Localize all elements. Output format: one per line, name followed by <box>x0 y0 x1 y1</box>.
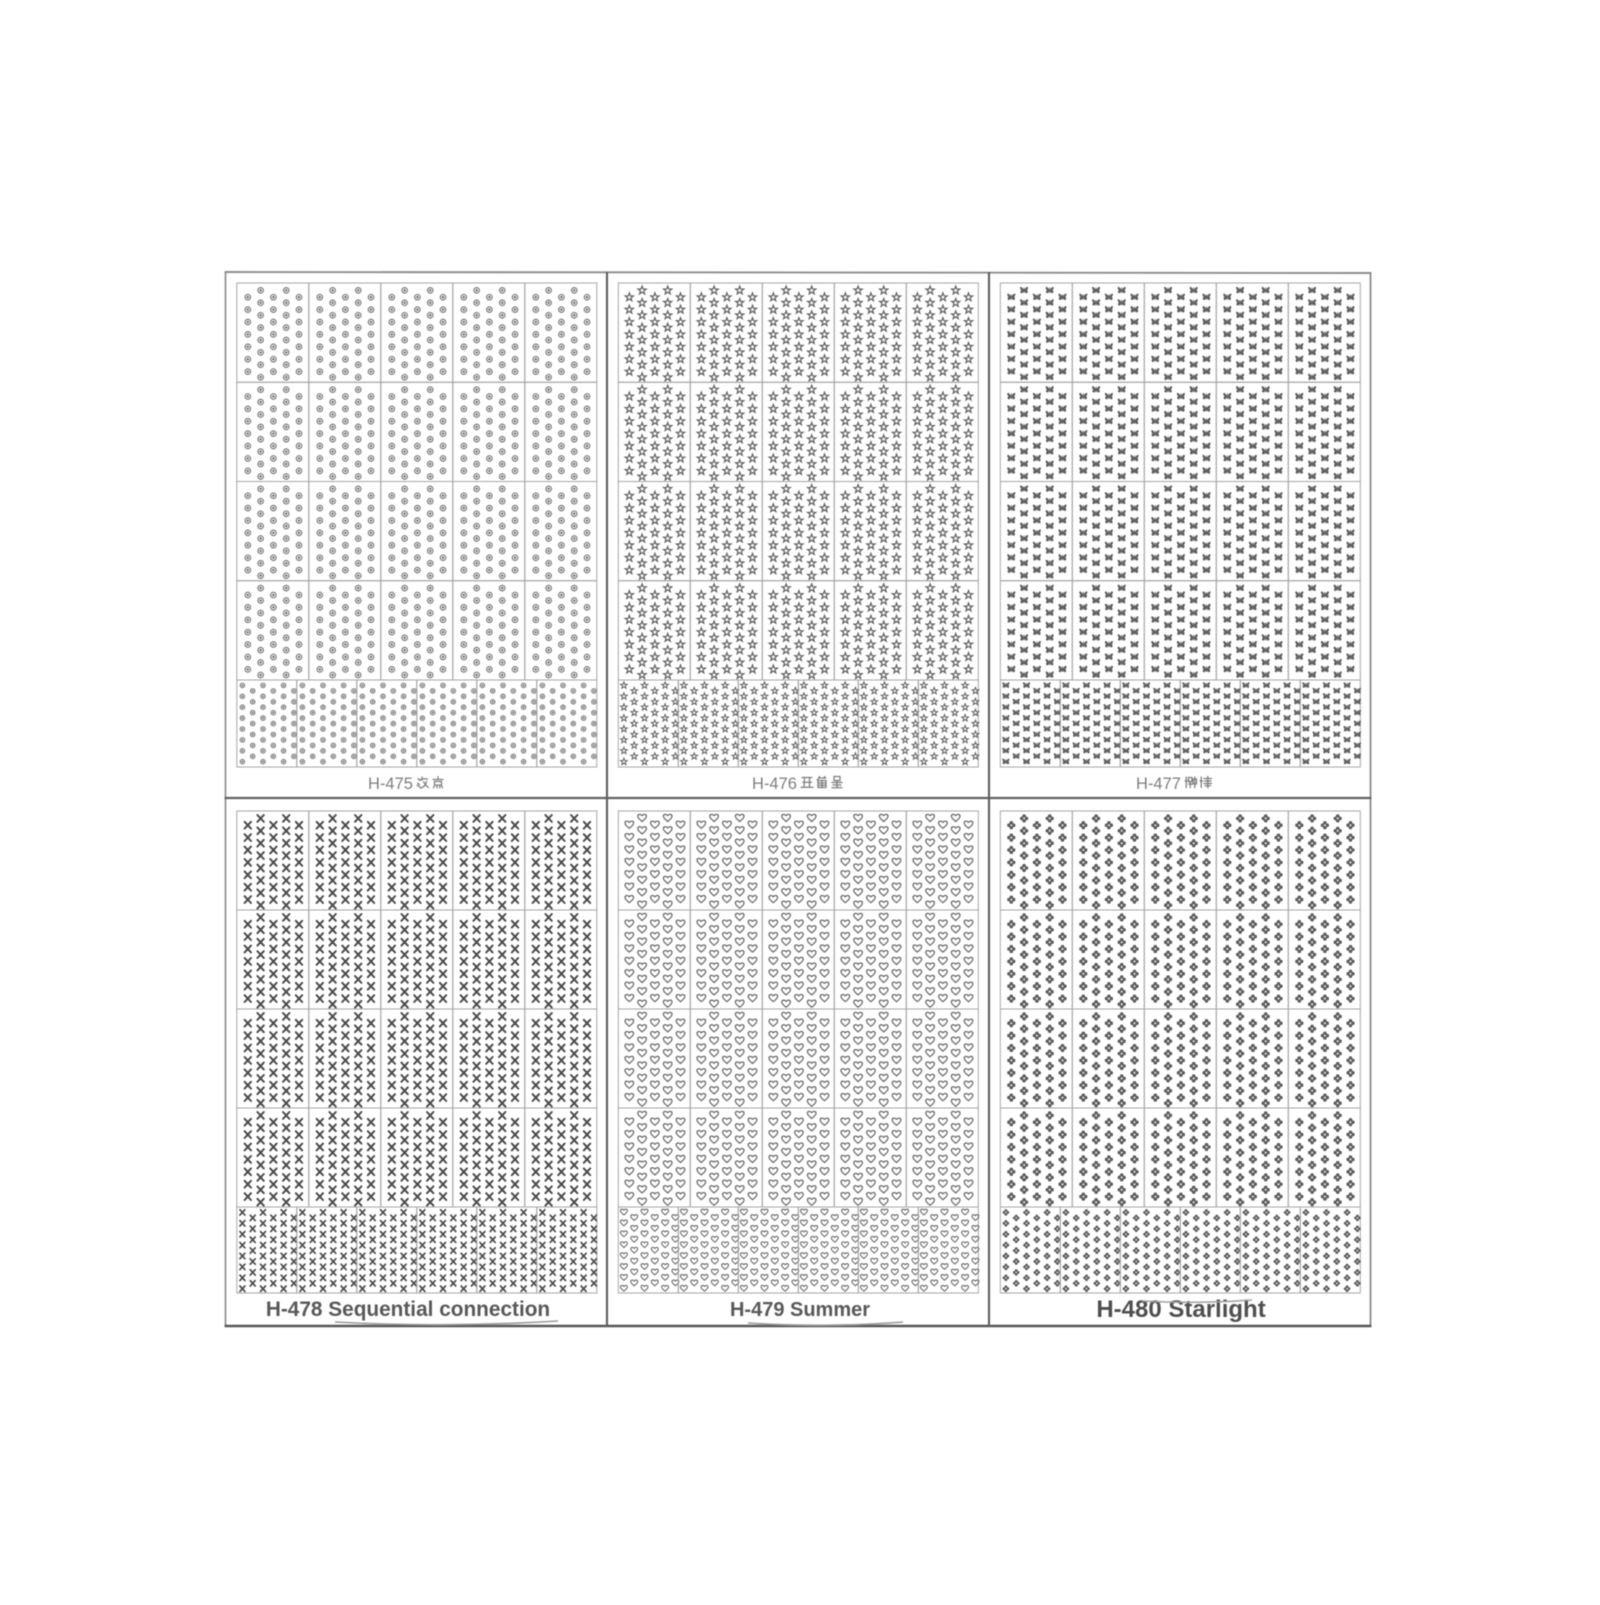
svg-text:H-479 Summer: H-479 Summer <box>730 1299 870 1321</box>
svg-text:H-478 Sequential connection: H-478 Sequential connection <box>266 1298 550 1321</box>
svg-text:H-477: H-477 <box>1136 775 1181 793</box>
svg-text:H-476: H-476 <box>752 775 797 793</box>
svg-text:H-475: H-475 <box>368 775 413 793</box>
